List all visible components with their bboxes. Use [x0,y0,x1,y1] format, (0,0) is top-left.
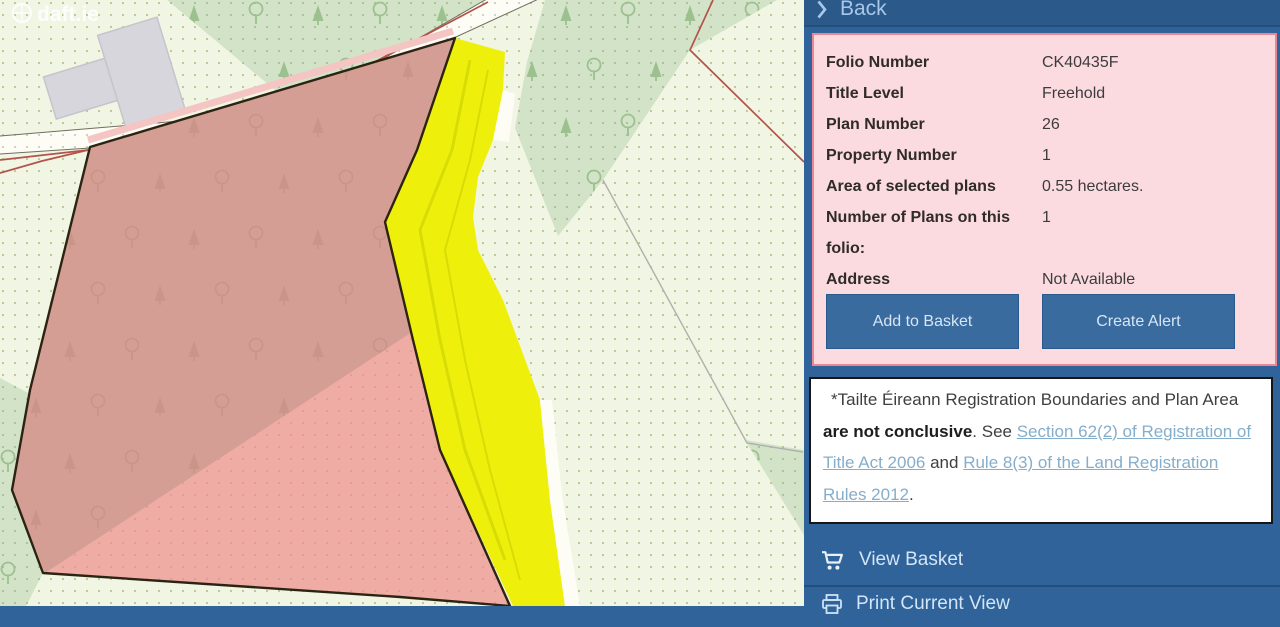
create-alert-button[interactable]: Create Alert [1042,294,1235,349]
watermark-label: daft.ie [37,3,99,26]
info-row: Number of Plans on this folio:1 [826,202,1275,264]
info-row: Area of selected plans0.55 hectares. [826,171,1275,202]
info-label: Folio Number [826,47,1042,78]
card-buttons: Add to BasketCreate Alert [826,294,1266,349]
add-to-basket-button[interactable]: Add to Basket [826,294,1019,349]
info-value: 1 [1042,140,1051,171]
info-value: Not Available [1042,264,1135,295]
view-basket-label: View Basket [859,549,963,571]
info-label: Title Level [826,78,1042,109]
view-basket-button[interactable]: View Basket [804,535,1280,585]
info-row: Plan Number26 [826,109,1275,140]
info-value: 1 [1042,202,1051,233]
map-svg[interactable]: daft.ie [0,0,804,606]
print-current-view-button[interactable]: Print Current View [804,587,1280,627]
disclaimer-segment: . [909,485,914,504]
disclaimer-segment: and [925,453,963,472]
chevron-right-icon [817,0,827,19]
printer-icon [821,593,843,615]
disclaimer-segment: . See [972,422,1016,441]
info-row: Property Number1 [826,140,1275,171]
back-button[interactable]: Back [804,0,1280,27]
info-label: Area of selected plans [826,171,1042,202]
folio-info-rows: Folio NumberCK40435FTitle LevelFreeholdP… [826,47,1275,295]
disclaimer-box: *Tailte Éireann Registration Boundaries … [809,377,1273,524]
details-panel: Back Folio NumberCK40435FTitle LevelFree… [804,0,1280,606]
disclaimer-text: *Tailte Éireann Registration Boundaries … [823,384,1259,510]
info-value: 26 [1042,109,1060,140]
back-label: Back [840,0,887,21]
info-value: Freehold [1042,78,1105,109]
info-row: Title LevelFreehold [826,78,1275,109]
info-row: Folio NumberCK40435F [826,47,1275,78]
disclaimer-segment: are not conclusive [823,422,972,441]
info-value: CK40435F [1042,47,1119,78]
info-value: 0.55 hectares. [1042,171,1143,202]
info-label: Property Number [826,140,1042,171]
info-row: AddressNot Available [826,264,1275,295]
cart-icon [821,550,846,571]
info-label: Number of Plans on this folio: [826,202,1042,264]
folio-info-card: Folio NumberCK40435FTitle LevelFreeholdP… [812,33,1277,366]
disclaimer-segment: *Tailte Éireann Registration Boundaries … [831,390,1238,409]
print-current-view-label: Print Current View [856,593,1010,615]
info-label: Plan Number [826,109,1042,140]
map-canvas[interactable]: daft.ie [0,0,804,606]
info-label: Address [826,264,1042,295]
